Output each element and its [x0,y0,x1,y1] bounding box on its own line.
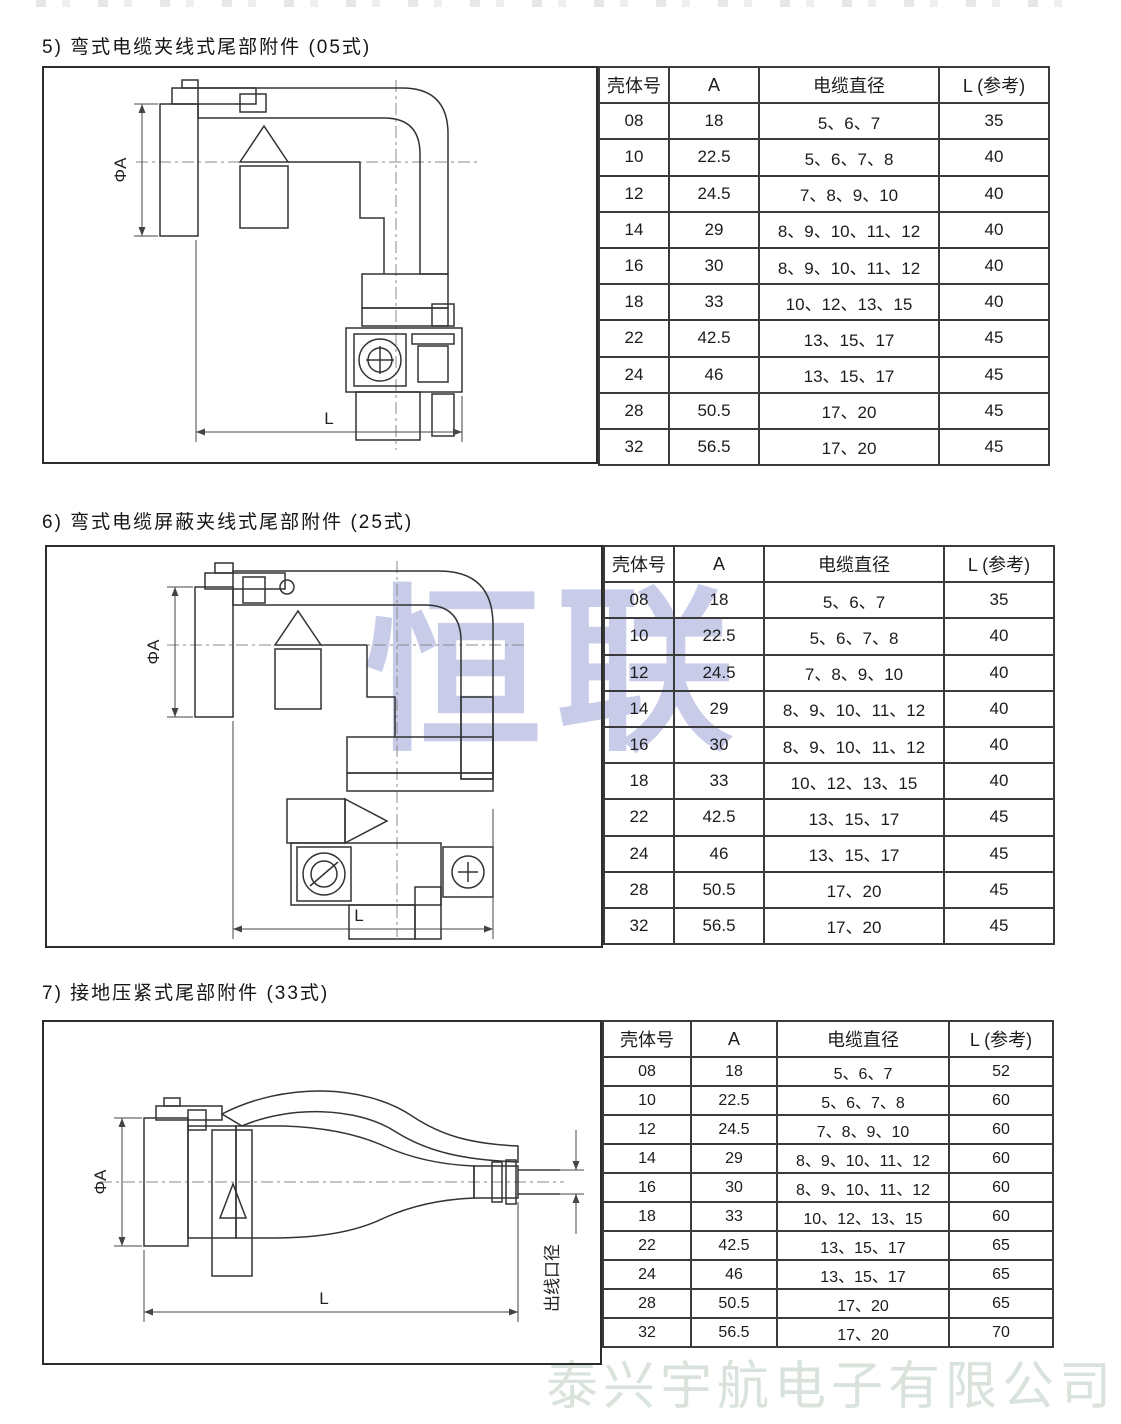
table-cell: 17、20 [764,908,944,944]
table-cell: 70 [949,1318,1053,1347]
elbow-shielded-cable-clamp-drawing: ΦA L [47,547,601,946]
table-cell: 18 [604,763,674,799]
table-row: 183310、12、13、1540 [604,763,1054,799]
dimension-label-exit-aperture: 出线口径 [543,1244,562,1312]
drawing-frame-05: ΦA L [42,66,598,464]
table-row: 2242.513、15、1745 [599,320,1049,356]
table-cell: 42.5 [691,1231,777,1260]
table-row: 1224.57、8、9、1040 [604,655,1054,691]
cropped-text-remnant [36,0,1076,7]
table-cell: 24.5 [691,1115,777,1144]
dimension-label-dia: ΦA [91,1169,110,1195]
dimension-label-dia: ΦA [111,157,130,183]
table-cell: 13、15、17 [777,1260,949,1289]
table-row: 3256.517、2045 [599,429,1049,465]
table-cell: 7、8、9、10 [764,655,944,691]
table-row: 2242.513、15、1745 [604,799,1054,835]
table-cell: 5、6、7 [764,582,944,618]
table-row: 1224.57、8、9、1040 [599,176,1049,212]
table-row: 2850.517、2045 [604,872,1054,908]
table-cell: 14 [604,691,674,727]
table-cell: 17、20 [759,393,939,429]
table-cell: 10 [599,139,669,175]
table-row: 3256.517、2045 [604,908,1054,944]
table-row: 16308、9、10、11、1260 [603,1173,1053,1202]
table-cell: 42.5 [674,799,764,835]
table-cell: 40 [944,727,1054,763]
table-row: 183310、12、13、1560 [603,1202,1053,1231]
table-cell: 14 [603,1144,691,1173]
datasheet-page: 恒联 泰兴宇航电子有限公司 5) 弯式电缆夹线式尾部附件 (05式) [0,0,1121,1424]
column-header-shell: 壳体号 [599,67,669,103]
table-cell: 40 [944,763,1054,799]
dimensions-table-05: 壳体号 A 电缆直径 L (参考) 08185、6、7351022.55、6、7… [598,66,1050,466]
table-cell: 08 [599,103,669,139]
table-cell: 40 [939,139,1049,175]
table-cell: 35 [944,582,1054,618]
table-cell: 8、9、10、11、12 [764,691,944,727]
table-cell: 29 [669,212,759,248]
column-header-l-ref: L (参考) [939,67,1049,103]
table-header-row: 壳体号 A 电缆直径 L (参考) [599,67,1049,103]
table-cell: 40 [944,691,1054,727]
table-cell: 28 [603,1289,691,1318]
table-cell: 16 [603,1173,691,1202]
table-cell: 8、9、10、11、12 [777,1173,949,1202]
table-cell: 29 [674,691,764,727]
table-cell: 5、6、7、8 [764,618,944,654]
column-header-a: A [669,67,759,103]
table-row: 14298、9、10、11、1240 [599,212,1049,248]
table-cell: 50.5 [691,1289,777,1318]
table-row: 183310、12、13、1540 [599,284,1049,320]
table-cell: 24 [599,357,669,393]
table-cell: 10、12、13、15 [777,1202,949,1231]
table-cell: 5、6、7、8 [759,139,939,175]
table-row: 244613、15、1745 [604,836,1054,872]
column-header-cable-dia: 电缆直径 [759,67,939,103]
table-cell: 18 [599,284,669,320]
table-header-row: 壳体号 A 电缆直径 L (参考) [603,1021,1053,1057]
table-cell: 10 [603,1086,691,1115]
table-cell: 7、8、9、10 [777,1115,949,1144]
table-cell: 12 [604,655,674,691]
table-header-row: 壳体号 A 电缆直径 L (参考) [604,546,1054,582]
table-cell: 40 [939,212,1049,248]
table-cell: 30 [669,248,759,284]
table-cell: 45 [939,429,1049,465]
table-row: 16308、9、10、11、1240 [604,727,1054,763]
dimension-label-length: L [354,906,363,925]
section-title-33: 7) 接地压紧式尾部附件 (33式) [42,978,329,1005]
table-cell: 33 [674,763,764,799]
table-cell: 56.5 [674,908,764,944]
table-cell: 12 [599,176,669,212]
table-row: 08185、6、735 [604,582,1054,618]
footer-watermark: 泰兴宇航电子有限公司 [546,1362,1116,1414]
table-cell: 33 [691,1202,777,1231]
table-cell: 50.5 [669,393,759,429]
table-cell: 29 [691,1144,777,1173]
table-cell: 24.5 [674,655,764,691]
table-cell: 17、20 [759,429,939,465]
table-cell: 45 [944,908,1054,944]
table-cell: 8、9、10、11、12 [777,1144,949,1173]
dimension-label-length: L [324,409,333,428]
table-cell: 40 [944,655,1054,691]
table-row: 2242.513、15、1765 [603,1231,1053,1260]
table-cell: 30 [691,1173,777,1202]
table-cell: 35 [939,103,1049,139]
table-cell: 22.5 [691,1086,777,1115]
table-row: 2850.517、2045 [599,393,1049,429]
table-cell: 12 [603,1115,691,1144]
table-cell: 60 [949,1202,1053,1231]
drawing-frame-33: ΦA L 出线口径 [42,1020,602,1365]
table-cell: 56.5 [669,429,759,465]
column-header-a: A [691,1021,777,1057]
table-cell: 5、6、7 [759,103,939,139]
column-header-a: A [674,546,764,582]
table-row: 3256.517、2070 [603,1318,1053,1347]
table-cell: 32 [599,429,669,465]
table-cell: 24 [603,1260,691,1289]
table-cell: 50.5 [674,872,764,908]
table-cell: 40 [944,618,1054,654]
table-cell: 30 [674,727,764,763]
table-cell: 10、12、13、15 [764,763,944,799]
table-cell: 22.5 [669,139,759,175]
table-cell: 32 [603,1318,691,1347]
column-header-cable-dia: 电缆直径 [777,1021,949,1057]
table-row: 14298、9、10、11、1240 [604,691,1054,727]
table-cell: 10 [604,618,674,654]
table-row: 1022.55、6、7、840 [599,139,1049,175]
table-cell: 60 [949,1173,1053,1202]
table-cell: 28 [599,393,669,429]
table-cell: 65 [949,1260,1053,1289]
table-cell: 60 [949,1115,1053,1144]
table-cell: 18 [669,103,759,139]
table-row: 1022.55、6、7、840 [604,618,1054,654]
table-cell: 08 [604,582,674,618]
table-cell: 8、9、10、11、12 [764,727,944,763]
table-cell: 32 [604,908,674,944]
table-cell: 40 [939,248,1049,284]
column-header-l-ref: L (参考) [944,546,1054,582]
table-cell: 17、20 [764,872,944,908]
table-cell: 08 [603,1057,691,1086]
table-cell: 13、15、17 [764,836,944,872]
section-title-25: 6) 弯式电缆屏蔽夹线式尾部附件 (25式) [42,507,413,534]
table-row: 244613、15、1745 [599,357,1049,393]
table-cell: 8、9、10、11、12 [759,248,939,284]
dimension-label-dia: ΦA [144,639,163,665]
table-cell: 17、20 [777,1318,949,1347]
table-cell: 18 [674,582,764,618]
table-cell: 22 [599,320,669,356]
dimension-label-length: L [319,1289,328,1308]
column-header-cable-dia: 电缆直径 [764,546,944,582]
table-cell: 60 [949,1144,1053,1173]
table-cell: 13、15、17 [777,1231,949,1260]
table-cell: 13、15、17 [759,357,939,393]
table-row: 08185、6、735 [599,103,1049,139]
table-cell: 45 [944,836,1054,872]
table-cell: 16 [604,727,674,763]
table-cell: 46 [691,1260,777,1289]
table-cell: 28 [604,872,674,908]
table-cell: 46 [669,357,759,393]
table-cell: 18 [691,1057,777,1086]
column-header-shell: 壳体号 [604,546,674,582]
table-cell: 17、20 [777,1289,949,1318]
table-cell: 45 [939,320,1049,356]
dimensions-table-25: 壳体号 A 电缆直径 L (参考) 08185、6、7351022.55、6、7… [603,545,1055,945]
table-cell: 45 [939,393,1049,429]
table-cell: 45 [939,357,1049,393]
table-cell: 56.5 [691,1318,777,1347]
table-row: 2850.517、2065 [603,1289,1053,1318]
table-cell: 45 [944,799,1054,835]
table-row: 244613、15、1765 [603,1260,1053,1289]
table-cell: 22.5 [674,618,764,654]
table-cell: 60 [949,1086,1053,1115]
table-cell: 5、6、7 [777,1057,949,1086]
table-row: 1022.55、6、7、860 [603,1086,1053,1115]
table-row: 08185、6、752 [603,1057,1053,1086]
table-cell: 7、8、9、10 [759,176,939,212]
table-cell: 14 [599,212,669,248]
table-cell: 65 [949,1231,1053,1260]
table-cell: 18 [603,1202,691,1231]
table-cell: 10、12、13、15 [759,284,939,320]
table-cell: 5、6、7、8 [777,1086,949,1115]
table-cell: 33 [669,284,759,320]
table-cell: 13、15、17 [764,799,944,835]
table-cell: 16 [599,248,669,284]
table-cell: 22 [604,799,674,835]
table-cell: 42.5 [669,320,759,356]
elbow-cable-clamp-drawing: ΦA L [44,68,596,462]
table-row: 1224.57、8、9、1060 [603,1115,1053,1144]
table-cell: 8、9、10、11、12 [759,212,939,248]
column-header-l-ref: L (参考) [949,1021,1053,1057]
table-cell: 13、15、17 [759,320,939,356]
table-row: 16308、9、10、11、1240 [599,248,1049,284]
section-title-05: 5) 弯式电缆夹线式尾部附件 (05式) [42,32,371,59]
table-cell: 65 [949,1289,1053,1318]
table-cell: 45 [944,872,1054,908]
table-cell: 24.5 [669,176,759,212]
dimensions-table-33: 壳体号 A 电缆直径 L (参考) 08185、6、7521022.55、6、7… [602,1020,1054,1348]
table-cell: 46 [674,836,764,872]
table-cell: 22 [603,1231,691,1260]
column-header-shell: 壳体号 [603,1021,691,1057]
table-cell: 24 [604,836,674,872]
table-cell: 40 [939,176,1049,212]
drawing-frame-25: ΦA L [45,545,603,948]
grounding-compression-tail-drawing: ΦA L 出线口径 [44,1022,600,1363]
table-cell: 40 [939,284,1049,320]
table-row: 14298、9、10、11、1260 [603,1144,1053,1173]
table-cell: 52 [949,1057,1053,1086]
